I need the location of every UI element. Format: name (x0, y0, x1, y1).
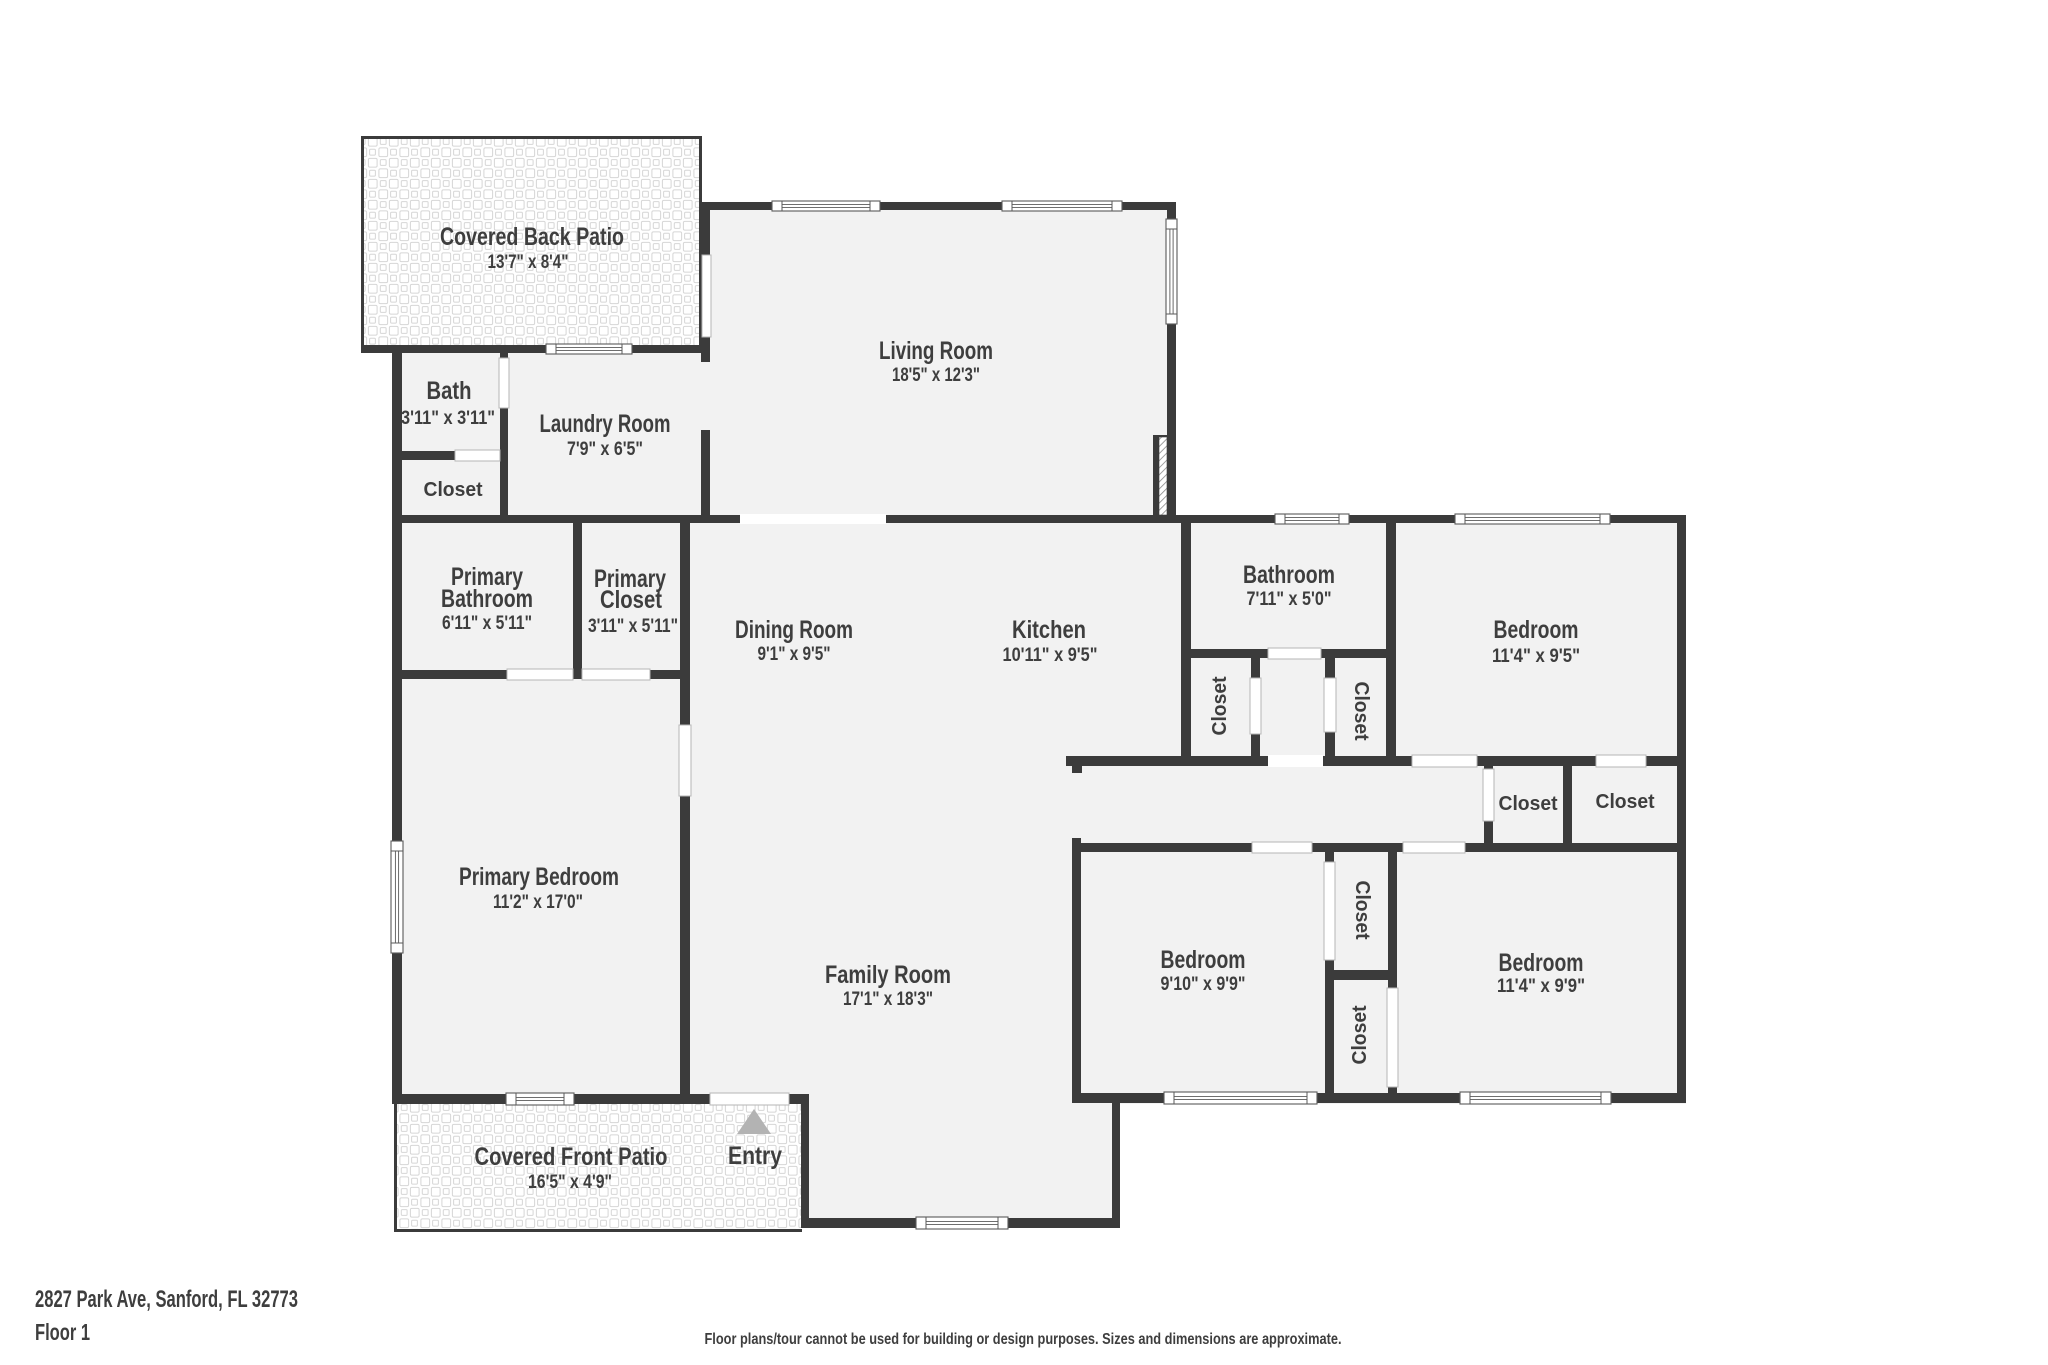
svg-text:Floor 1: Floor 1 (35, 1319, 90, 1345)
svg-text:Bathroom: Bathroom (1243, 561, 1335, 589)
svg-text:Closet: Closet (1596, 791, 1655, 813)
svg-text:Bath: Bath (427, 377, 472, 405)
svg-text:Closet: Closet (1349, 1005, 1371, 1064)
svg-text:6'11" x 5'11": 6'11" x 5'11" (442, 613, 532, 634)
svg-text:Kitchen: Kitchen (1012, 616, 1086, 644)
svg-text:Dining Room: Dining Room (735, 616, 853, 644)
svg-text:9'1" x 9'5": 9'1" x 9'5" (758, 644, 831, 665)
svg-text:Closet: Closet (1351, 881, 1373, 940)
svg-text:Laundry Room: Laundry Room (540, 410, 671, 438)
svg-text:Bedroom: Bedroom (1161, 946, 1246, 974)
svg-text:3'11" x 3'11": 3'11" x 3'11" (401, 408, 495, 429)
svg-text:7'11" x 5'0": 7'11" x 5'0" (1247, 589, 1332, 610)
svg-text:Living Room: Living Room (879, 337, 993, 365)
svg-text:Entry: Entry (728, 1142, 782, 1170)
svg-text:11'4" x 9'5": 11'4" x 9'5" (1492, 646, 1580, 667)
svg-text:Closet: Closet (1499, 793, 1558, 815)
svg-text:Floor plans/tour cannot be use: Floor plans/tour cannot be used for buil… (705, 1331, 1342, 1348)
svg-text:11'2" x 17'0": 11'2" x 17'0" (493, 892, 583, 913)
svg-text:Bathroom: Bathroom (441, 585, 533, 613)
svg-text:Covered Front Patio: Covered Front Patio (475, 1143, 668, 1171)
svg-text:2827 Park Ave, Sanford, FL 327: 2827 Park Ave, Sanford, FL 32773 (35, 1286, 298, 1313)
svg-text:Closet: Closet (1350, 682, 1372, 741)
svg-text:7'9" x 6'5": 7'9" x 6'5" (567, 439, 643, 460)
svg-text:9'10" x 9'9": 9'10" x 9'9" (1161, 974, 1246, 995)
svg-text:Closet: Closet (600, 586, 663, 614)
svg-text:Primary Bedroom: Primary Bedroom (459, 863, 619, 891)
svg-text:Bedroom: Bedroom (1499, 949, 1584, 977)
svg-text:18'5" x 12'3": 18'5" x 12'3" (892, 365, 980, 386)
svg-text:3'11" x 5'11": 3'11" x 5'11" (588, 616, 678, 637)
svg-text:Bedroom: Bedroom (1494, 616, 1579, 644)
svg-text:17'1" x 18'3": 17'1" x 18'3" (843, 989, 933, 1010)
svg-text:Closet: Closet (1209, 676, 1231, 735)
svg-text:Family Room: Family Room (825, 961, 951, 989)
svg-text:Closet: Closet (424, 479, 483, 501)
svg-text:10'11" x 9'5": 10'11" x 9'5" (1003, 645, 1098, 666)
svg-text:16'5" x 4'9": 16'5" x 4'9" (528, 1172, 612, 1193)
svg-text:13'7" x 8'4": 13'7" x 8'4" (488, 252, 569, 273)
svg-text:Covered Back Patio: Covered Back Patio (440, 223, 624, 251)
svg-text:11'4" x 9'9": 11'4" x 9'9" (1497, 976, 1585, 997)
